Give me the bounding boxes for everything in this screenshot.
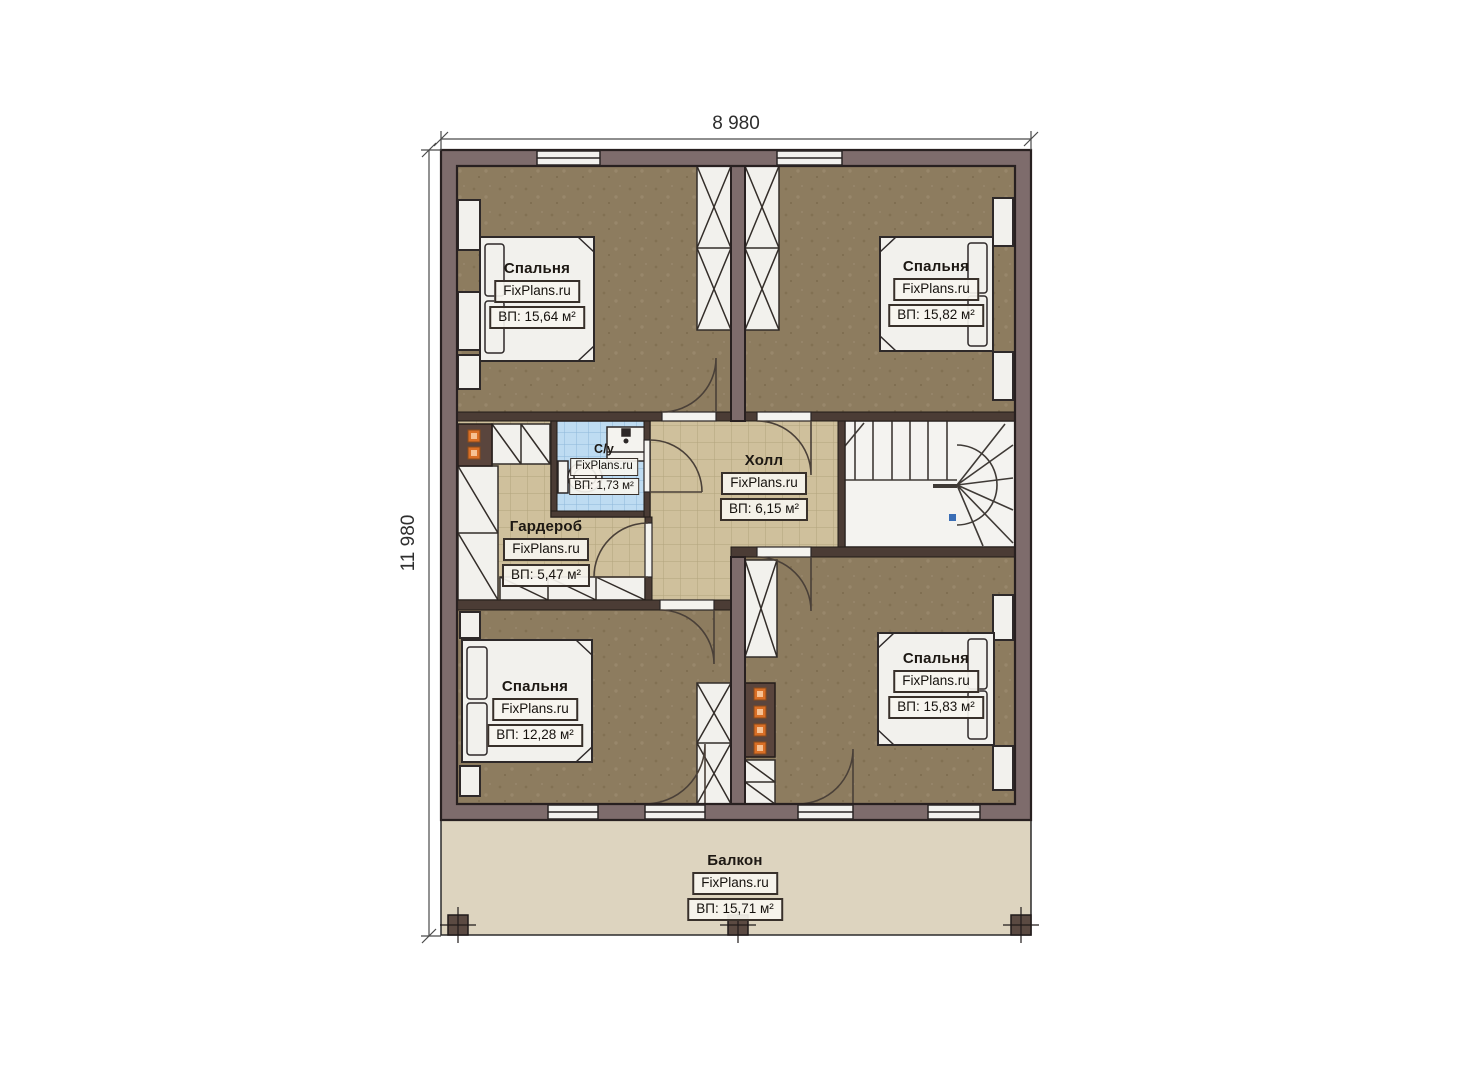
partition-top [731,166,745,421]
room-name: Гардероб [502,518,590,535]
room-area: ВП: 5,47 м² [502,564,590,587]
nightstand [993,352,1013,400]
nightstand [460,612,480,638]
room-name: Спальня [888,650,984,667]
room-name: Холл [720,452,808,469]
room-label-hall: Холл FixPlans.ru ВП: 6,15 м² [720,452,808,524]
room-label-balcony: Балкон FixPlans.ru ВП: 15,71 м² [687,852,783,924]
room-area: ВП: 15,71 м² [687,898,783,921]
stair-marker [949,514,956,521]
shaft-bottom-left [697,683,731,804]
watermark: FixPlans.ru [503,538,589,561]
window-top-right [777,151,842,165]
watermark: FixPlans.ru [570,458,638,476]
room-area: ВП: 6,15 м² [720,498,808,521]
closet-left-column [458,466,498,600]
room-area: ВП: 15,82 м² [888,304,984,327]
watermark: FixPlans.ru [492,698,578,721]
nightstand [993,746,1013,790]
floor-plan-page: 8 980 11 980 Спальня FixPlans.ru ВП: 15,… [0,0,1473,1080]
watermark: FixPlans.ru [494,280,580,303]
nightstand [993,198,1013,246]
balcony-door-left [645,805,705,819]
shaft-top-left [697,166,731,330]
room-name: Спальня [489,260,585,277]
room-label-bathroom: С/у FixPlans.ru ВП: 1,73 м² [569,442,639,497]
cabinet-under-chimney [745,760,775,804]
nightstand [458,355,480,389]
dimension-width-label: 8 980 [712,113,760,135]
window-top-left [537,151,600,165]
watermark: FixPlans.ru [893,670,979,693]
watermark: FixPlans.ru [893,278,979,301]
nightstand [993,595,1013,640]
floor-stairs [845,421,1015,547]
room-name: Балкон [687,852,783,869]
closet-top-row [492,424,550,464]
nightstand [458,200,480,250]
chimney-wardrobe [458,424,492,466]
room-area: ВП: 15,83 м² [888,696,984,719]
partition-bottom [731,557,745,804]
pillow [467,647,487,699]
pillow [467,703,487,755]
room-label-bedroom-top-left: Спальня FixPlans.ru ВП: 15,64 м² [489,260,585,332]
room-label-bedroom-bottom-right: Спальня FixPlans.ru ВП: 15,83 м² [888,650,984,722]
room-label-bedroom-bottom-left: Спальня FixPlans.ru ВП: 12,28 м² [487,678,583,750]
balcony-door-right [798,805,853,819]
room-area: ВП: 12,28 м² [487,724,583,747]
shaft-top-right [745,166,779,330]
room-label-bedroom-top-right: Спальня FixPlans.ru ВП: 15,82 м² [888,258,984,330]
dimension-height-label: 11 980 [398,515,420,572]
closet-bottom-right [745,560,777,657]
room-area: ВП: 15,64 м² [489,306,585,329]
room-name: С/у [569,442,639,456]
room-name: Спальня [487,678,583,695]
chimney-bedroom-bottom-right [745,683,775,757]
nightstand [458,292,480,350]
window-bottom-right [928,805,980,819]
room-label-wardrobe: Гардероб FixPlans.ru ВП: 5,47 м² [502,518,590,590]
nightstand [460,766,480,796]
watermark: FixPlans.ru [692,872,778,895]
room-name: Спальня [888,258,984,275]
watermark: FixPlans.ru [721,472,807,495]
room-area: ВП: 1,73 м² [569,478,639,496]
dimension-left [421,143,441,943]
window-bottom-left [548,805,598,819]
